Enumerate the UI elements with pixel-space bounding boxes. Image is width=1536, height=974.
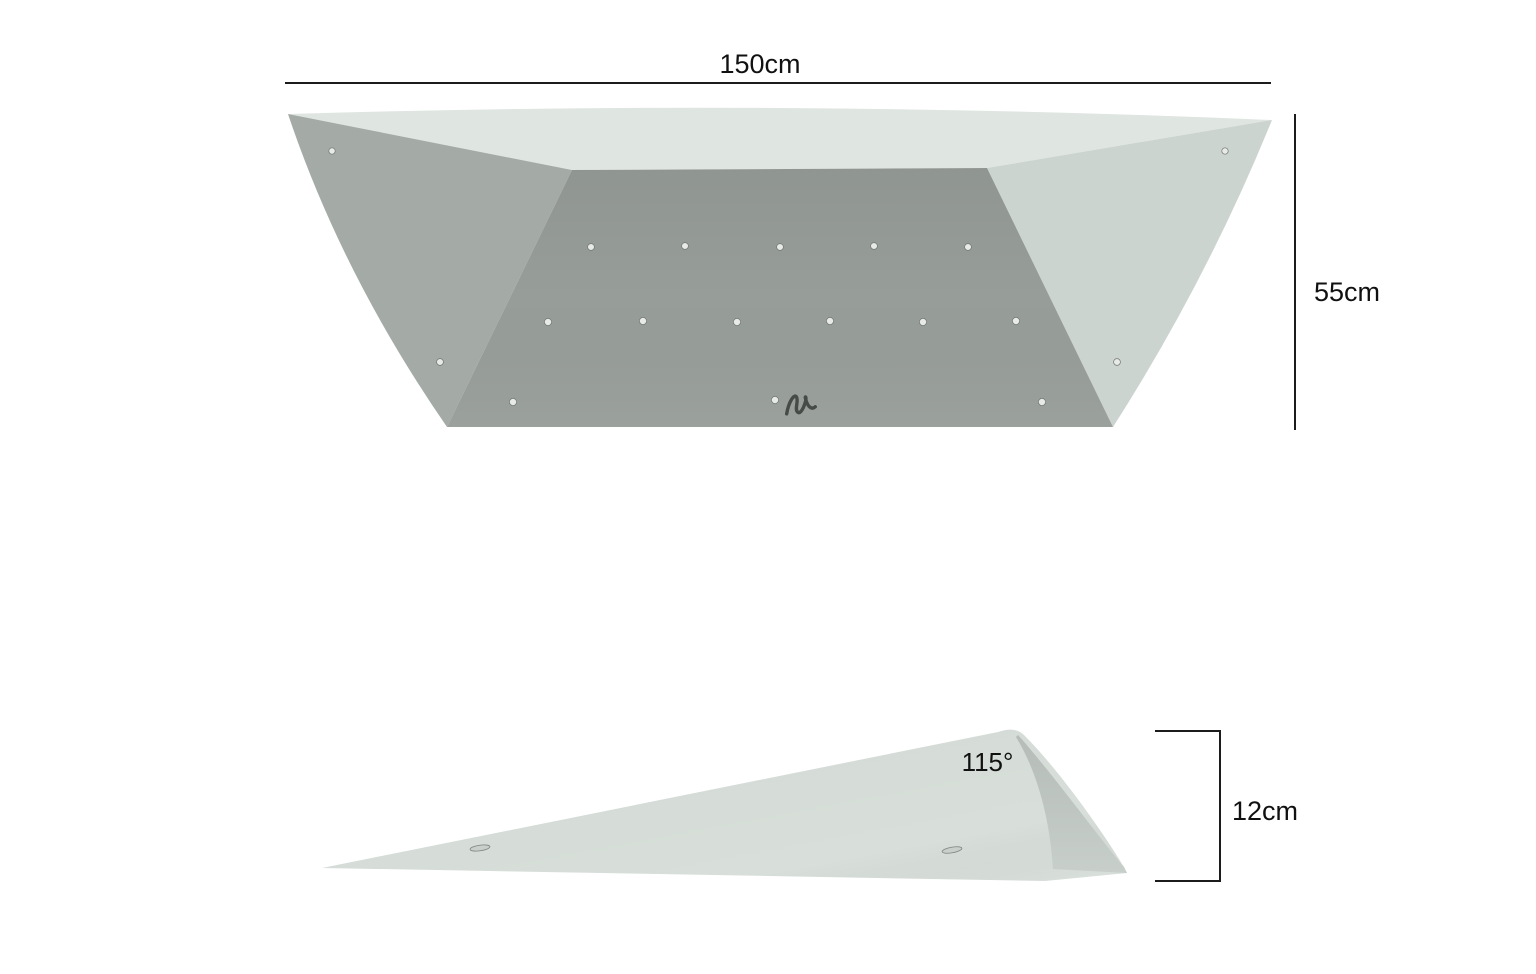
t-nut-hole [871,243,878,250]
side-depth-bracket-vertical-line [1219,730,1221,882]
t-nut-hole [1012,317,1019,324]
t-nut-hole [544,318,551,325]
t-nut-hole [919,318,926,325]
t-nut-hole [1222,148,1228,154]
front-view-rendering [280,100,1280,440]
front-height-dimension-line [1294,114,1296,430]
t-nut-hole [771,396,778,403]
side-depth-bracket-top-tick [1155,730,1221,732]
t-nut-hole [329,148,335,154]
t-nut-hole [509,398,516,405]
technical-drawing-canvas: 150cm [0,0,1536,974]
t-nut-hole [733,318,740,325]
front-width-label: 150cm [685,49,835,79]
side-angle-label: 115° [945,747,1030,777]
t-nut-hole [826,317,833,324]
side-depth-label: 12cm [1232,796,1298,826]
t-nut-hole [965,244,972,251]
front-height-label: 55cm [1314,277,1380,307]
t-nut-hole [682,243,689,250]
front-width-dimension-line [285,82,1271,84]
t-nut-hole [777,244,784,251]
side-view-rendering [300,715,1140,895]
t-nut-hole [1038,398,1045,405]
t-nut-hole [639,317,646,324]
t-nut-hole [588,244,595,251]
side-depth-bracket-bottom-tick [1155,880,1221,882]
t-nut-hole [1114,359,1121,366]
t-nut-hole [437,359,444,366]
